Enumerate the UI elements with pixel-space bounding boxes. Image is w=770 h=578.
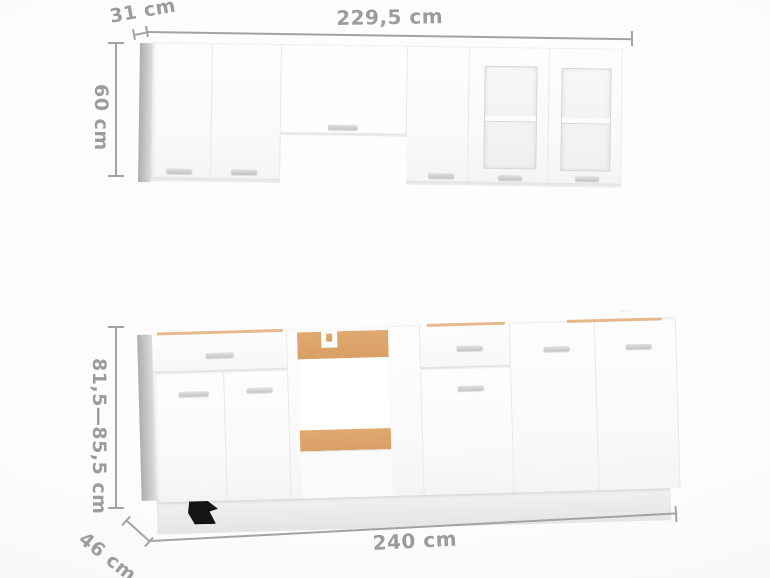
door-handle: [575, 176, 599, 181]
drawer-handle: [206, 352, 234, 358]
door-handle: [166, 168, 192, 173]
base-width-label: 240 cm: [372, 527, 458, 555]
glass-door-1: [468, 47, 550, 186]
door-handle: [428, 173, 454, 178]
chipboard-band-bottom: [300, 428, 392, 452]
wall-door-1: [151, 42, 213, 181]
dim-wall-width-line: [147, 31, 633, 40]
dim-base-height-cap: [108, 507, 124, 509]
wall-door-3: [406, 46, 470, 185]
glass-pane-1: [483, 66, 537, 170]
wall-carcass-bottom-left: [151, 177, 280, 183]
oven-housing-right-stile: [388, 325, 425, 496]
dim-wall-height-line: [115, 43, 117, 177]
chipboard-band-top: [297, 330, 389, 360]
base-height-label: 81,5—85,5 cm: [88, 358, 110, 514]
mounting-tab-notch: [326, 334, 332, 342]
glass-door-2: [548, 48, 623, 187]
door-handle: [458, 385, 484, 391]
cabinet-shelf: [562, 118, 610, 125]
door-handle: [498, 175, 522, 180]
door-handle: [231, 169, 257, 174]
wall-door-2: [211, 43, 282, 182]
drawer-handle: [456, 345, 482, 351]
kitchen-cabinet-product-image: 31 cm 229,5 cm 60 cm 81,5—85,5 cm 46 cm …: [0, 0, 770, 578]
glass-pane-2: [560, 68, 611, 172]
door-handle: [179, 391, 209, 397]
wall-width-label: 229,5 cm: [336, 4, 443, 30]
dim-base-height-cap: [108, 326, 124, 328]
dim-base-height-line: [115, 327, 117, 509]
door-handle: [328, 125, 358, 130]
wall-height-label: 60 cm: [90, 84, 112, 151]
cabinet-shelf: [485, 116, 536, 123]
base-cabinet-row: [137, 318, 684, 545]
mounting-tab: [321, 327, 338, 347]
oven-housing: [297, 326, 393, 498]
hood-carcass-bottom: [281, 132, 407, 137]
dim-wall-height-cap: [108, 175, 124, 177]
dim-wall-height-cap: [108, 42, 124, 44]
base-drawer-front-1: [152, 329, 288, 374]
hood-cabinet-door: [281, 44, 408, 137]
dim-wall-width-tick: [631, 31, 633, 46]
wall-depth-label: 31 cm: [108, 0, 177, 28]
door-handle: [247, 387, 273, 393]
base-depth-label: 46 cm: [74, 528, 140, 578]
door-handle: [544, 346, 570, 352]
oven-opening: [298, 357, 391, 431]
door-handle: [626, 344, 652, 350]
oven-lower-panel: [300, 449, 392, 499]
wall-cabinet-row: [138, 42, 624, 194]
